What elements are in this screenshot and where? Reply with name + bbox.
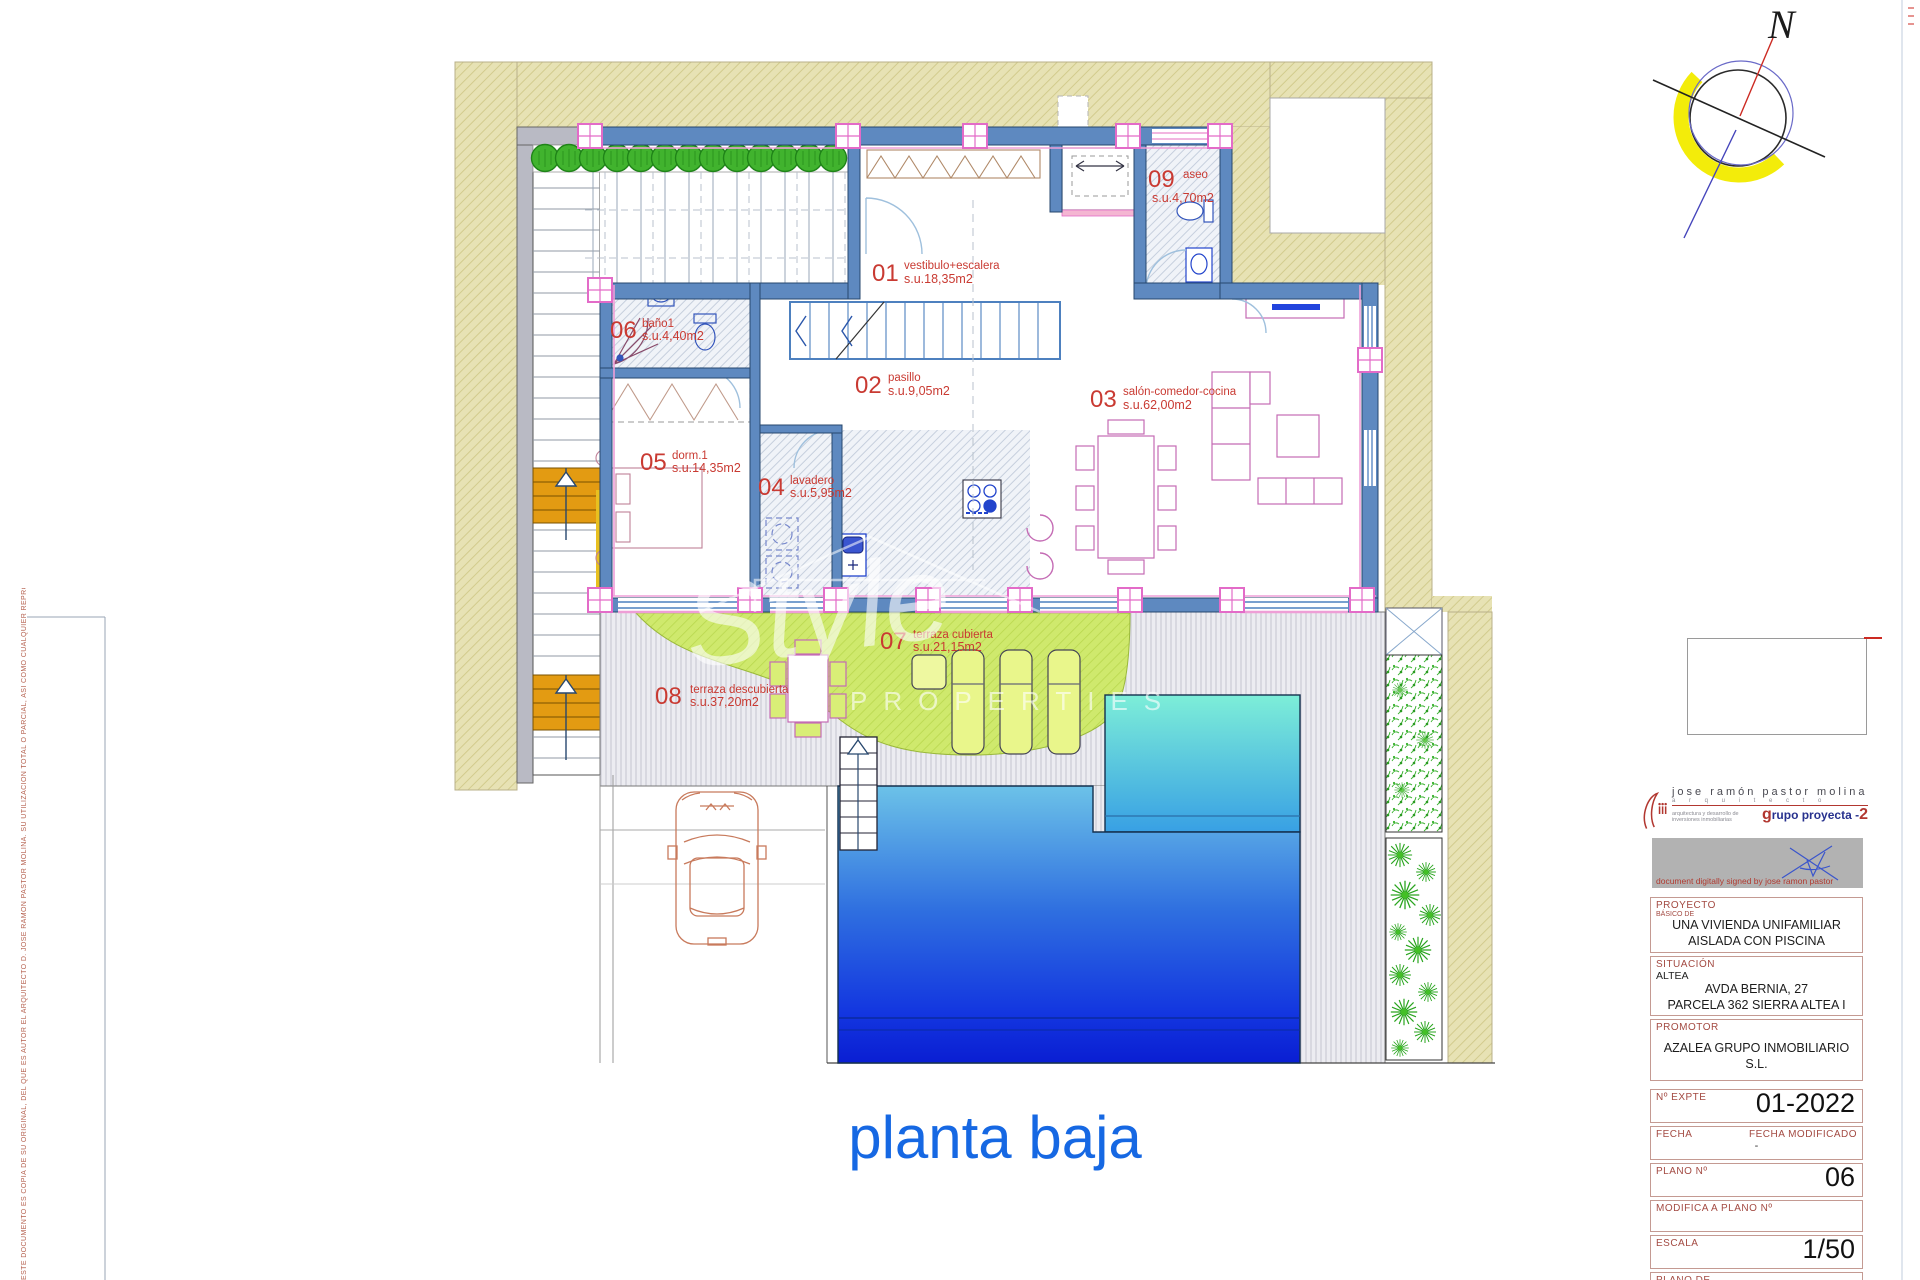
room-number: 06 [610,317,637,344]
situacion-line1: AVDA BERNIA, 27 [1656,982,1857,998]
room-number: 01 [872,260,899,287]
floor-plan-drawing: 01 vestibulo+escalera s.u.18,35m2 02 pas… [0,0,1920,1280]
pool-ladder [840,737,877,850]
group-g: g [1762,806,1772,823]
architect-tagline: arquitectura y desarrollo de inversiones… [1672,811,1762,824]
room-area: s.u.5,95m2 [790,486,852,500]
promotor-label: PROMOTOR [1656,1022,1857,1033]
copyright-disclaimer: ESTE DOCUMENTO ES COPIA DE SU ORIGINAL, … [21,588,33,1280]
room-name: vestibulo+escalera [904,260,1000,272]
titleblock-expte: Nº EXPTE 01-2022 [1650,1089,1863,1123]
room-area: s.u.14,35m2 [672,461,741,475]
room-number: 09 [1148,166,1175,193]
room-number: 02 [855,372,882,399]
compass-rose: N [1653,2,1825,238]
titleblock-plano-de: PLANO DE PLANTA BAJA [1650,1272,1863,1280]
fecha-mod-value: - [1656,1140,1857,1152]
modifica-label: MODIFICA A PLANO Nº [1656,1203,1857,1214]
revision-box [1687,638,1867,735]
proyecto-value: UNA VIVIENDA UNIFAMILIAR AISLADA CON PIS… [1656,918,1857,949]
room-number: 08 [655,683,682,710]
situacion-label: SITUACIÓN [1656,959,1857,970]
titleblock-plano-n: PLANO Nº 06 [1650,1163,1863,1197]
room-number: 05 [640,449,667,476]
east-planters [1386,608,1442,1060]
room-area: s.u.4,70m2 [1152,191,1214,205]
titleblock-situacion: SITUACIÓN ALTEA AVDA BERNIA, 27 PARCELA … [1650,956,1863,1016]
signature-note: document digitally signed by jose ramon … [1656,876,1833,886]
promotor-value: AZALEA GRUPO INMOBILIARIO S.L. [1656,1041,1857,1072]
architect-profession: a r q u i t e c t o [1672,798,1868,806]
sheet-title: planta baja [848,1104,1142,1171]
proyecto-label: PROYECTO [1656,900,1857,911]
red-tick [1864,637,1882,639]
room-name: salón-comedor-cocina [1123,386,1237,398]
coffee-table [1277,415,1319,457]
titleblock-promotor: PROMOTOR AZALEA GRUPO INMOBILIARIO S.L. [1650,1019,1863,1081]
room-area: s.u.37,20m2 [690,695,759,709]
fecha-mod-label: FECHA MODIFICADO [1749,1129,1857,1140]
titleblock-escala: ESCALA 1/50 [1650,1235,1863,1269]
car [668,792,766,945]
planter-ferns [1386,655,1442,832]
group-num: 2 [1859,806,1868,823]
architect-group: grupo proyecta -2 [1762,806,1868,824]
titleblock-proyecto: PROYECTO BÁSICO DE UNA VIVIENDA UNIFAMIL… [1650,897,1863,953]
plan-sheet: 01 vestibulo+escalera s.u.18,35m2 02 pas… [0,0,1920,1280]
room-area: s.u.9,05m2 [888,384,950,398]
fecha-label: FECHA [1656,1129,1692,1140]
titleblock-fecha: FECHA FECHA MODIFICADO - [1650,1126,1863,1160]
room-name: aseo [1183,169,1208,181]
main-staircase [790,302,1060,359]
situacion-line2: PARCELA 362 SIERRA ALTEA I [1656,998,1857,1014]
sofa-2 [1258,478,1342,504]
proyecto-sub: BÁSICO DE [1656,911,1857,918]
room-area: s.u.18,35m2 [904,272,973,286]
proyecto-line1: UNA VIVIENDA UNIFAMILIAR [1656,918,1857,934]
architect-logo: jose ramón pastor molina a r q u i t e c… [1642,786,1868,836]
setback-notch [1270,98,1385,233]
bed [612,468,702,548]
watermark-text-properties: PROPERTIES [850,686,1177,716]
elevator [1062,148,1138,216]
room-number: 04 [758,474,785,501]
plano-de-label: PLANO DE [1656,1275,1857,1280]
tv [1272,304,1320,310]
insulation-strip [596,490,600,600]
west-boundary-steps [517,127,600,783]
titleblock-modifica: MODIFICA A PLANO Nº [1650,1200,1863,1232]
room-name: pasillo [888,372,921,384]
group-mid: rupo proyecta - [1772,808,1859,822]
room-area: s.u.4,40m2 [642,329,704,343]
title-block: PROYECTO BÁSICO DE UNA VIVIENDA UNIFAMIL… [1650,894,1863,1280]
situacion-city: ALTEA [1656,970,1857,982]
proyecto-line2: AISLADA CON PISCINA [1656,934,1857,950]
room-number: 03 [1090,386,1117,413]
architect-logo-glyph [1642,786,1668,836]
digital-signature-box: document digitally signed by jose ramon … [1652,838,1863,888]
room-area: s.u.62,00m2 [1123,398,1192,412]
architect-name: jose ramón pastor molina [1672,786,1868,798]
